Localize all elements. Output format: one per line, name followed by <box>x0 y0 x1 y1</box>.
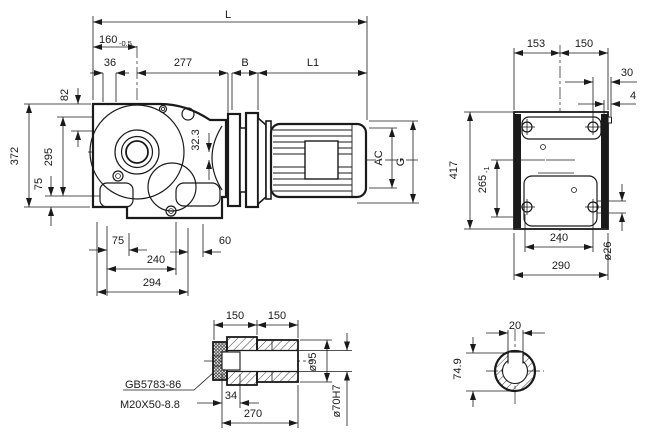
dim-270: 270 <box>244 408 262 420</box>
coupling-taper <box>258 118 266 204</box>
dim-160: 160 <box>99 34 117 46</box>
dim-265: 265 <box>477 175 489 193</box>
dim-group-82: 82 <box>59 88 92 147</box>
dim-36: 36 <box>104 57 116 69</box>
dim-82: 82 <box>59 89 71 101</box>
dim-60: 60 <box>219 235 231 247</box>
dim-295: 295 <box>43 148 55 166</box>
dim-150-end: 150 <box>575 38 593 50</box>
end-view-tab <box>608 117 612 123</box>
dim-30: 30 <box>621 67 633 79</box>
dim-L: L <box>225 9 231 21</box>
dim-150-shaft-right: 150 <box>268 310 286 322</box>
drawing-page: L 160 -0.5 36 277 B L1 <box>0 0 645 440</box>
dim-L1: L1 <box>307 57 319 69</box>
dim-group-150-end: 150 <box>560 38 608 53</box>
dim-290: 290 <box>552 260 570 272</box>
dim-372: 372 <box>9 147 21 165</box>
dim-150-shaft-left: 150 <box>226 310 244 322</box>
dim-B: B <box>241 57 248 69</box>
end-view: 153 150 30 4 417 <box>448 38 637 280</box>
dim-240-end: 240 <box>550 232 568 244</box>
dim-32-3: 32.3 <box>190 129 202 150</box>
dim-4: 4 <box>630 90 636 102</box>
dim-160-tolerance: -0.5 <box>119 39 132 48</box>
coupling-ring-2 <box>246 113 258 207</box>
dim-G: G <box>395 158 407 167</box>
dim-group-294: 294 <box>97 277 188 292</box>
end-view-left-wall <box>515 114 522 228</box>
dim-group-240: 240 <box>107 254 176 269</box>
dim-group-75-left: 75 <box>33 176 51 226</box>
gearbox-housing <box>93 104 226 218</box>
dim-75-bottom: 75 <box>112 235 124 247</box>
terminal-box <box>305 141 338 179</box>
side-view: L 160 -0.5 36 277 B L1 <box>9 9 420 296</box>
technical-drawing: L 160 -0.5 36 277 B L1 <box>0 0 645 440</box>
dim-34: 34 <box>225 390 237 402</box>
dim-dia26: ø26 <box>602 242 614 261</box>
dim-group-L1: L1 <box>258 57 367 73</box>
dim-group-B: B <box>232 57 258 110</box>
dim-417: 417 <box>448 161 460 179</box>
section-view: 20 74.9 <box>452 320 545 407</box>
dim-group-AC: AC <box>369 128 397 188</box>
dim-294: 294 <box>143 277 161 289</box>
note-standard: GB5783-86 <box>125 379 181 391</box>
dim-group-417: 417 <box>448 112 513 229</box>
dim-group-75-bottom: 75 <box>89 235 147 250</box>
section-keyway-fill <box>508 352 523 364</box>
dim-dia95: ø95 <box>307 353 319 372</box>
note-group-bolt: GB5783-86 M20X50-8.8 <box>120 373 213 411</box>
dim-153: 153 <box>527 38 545 50</box>
dim-group-dia70: ø70H7 <box>299 333 352 426</box>
shaft-view: 150 150 ø95 ø70H7 34 2 <box>120 310 352 428</box>
dim-group-60: 60 <box>170 235 231 252</box>
dim-75-left: 75 <box>33 178 45 190</box>
dim-dia70: ø70H7 <box>331 384 343 417</box>
dim-74-9: 74.9 <box>452 358 464 379</box>
dim-265-tolerance: -1 <box>482 166 491 173</box>
dim-277: 277 <box>174 57 192 69</box>
dim-AC: AC <box>373 150 385 165</box>
dim-group-153: 153 <box>514 38 608 110</box>
dim-group-36: 36 <box>90 57 129 102</box>
dim-group-295: 295 <box>43 117 100 196</box>
note-bolt: M20X50-8.8 <box>120 399 180 411</box>
dim-group-20: 20 <box>486 320 545 354</box>
dim-240: 240 <box>147 254 165 266</box>
dim-20: 20 <box>509 320 521 332</box>
coupling-ring-1 <box>228 114 240 206</box>
dim-group-150-shaft-right: 150 <box>257 310 298 325</box>
shaft-keyway-slot <box>222 352 240 370</box>
end-view-right-wall <box>601 114 608 228</box>
dim-group-160: 160 -0.5 <box>93 34 137 48</box>
